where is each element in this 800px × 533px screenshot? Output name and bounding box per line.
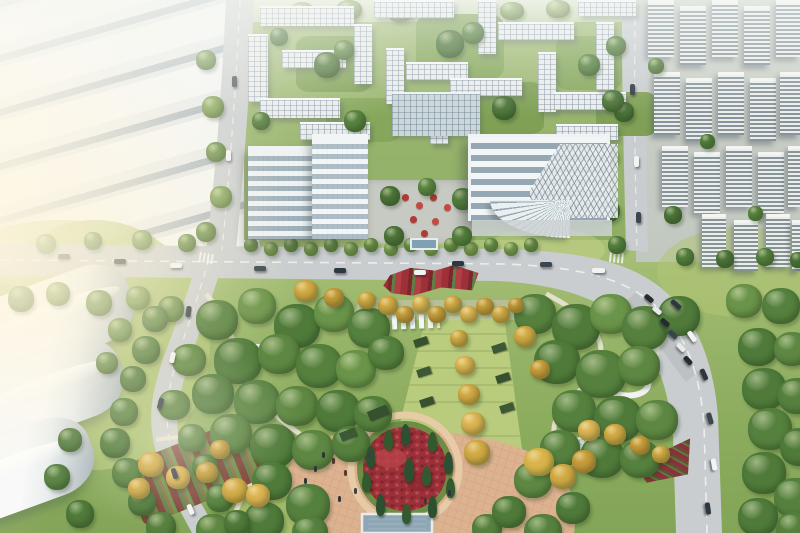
tree — [158, 296, 184, 322]
tree — [314, 294, 354, 332]
park-canopy — [226, 342, 265, 354]
tree — [550, 464, 576, 489]
conifer — [404, 458, 414, 482]
tree — [444, 296, 462, 313]
tree — [142, 306, 168, 332]
car — [670, 299, 682, 311]
hq-tower-left — [248, 134, 368, 238]
tree — [492, 306, 510, 323]
car — [644, 293, 655, 303]
tree — [774, 332, 800, 366]
tree — [192, 374, 234, 414]
person — [344, 470, 347, 476]
tree — [524, 238, 538, 252]
flower-patch — [632, 438, 699, 487]
tree — [464, 440, 490, 465]
conifer — [362, 472, 371, 492]
person — [368, 452, 371, 458]
car — [705, 502, 712, 515]
tree — [244, 502, 284, 533]
tree — [492, 496, 526, 528]
person — [332, 458, 335, 464]
tree — [622, 306, 668, 350]
tree — [368, 336, 404, 370]
person — [304, 478, 307, 484]
car — [683, 355, 693, 366]
tree — [742, 452, 786, 494]
car — [687, 330, 698, 343]
tree — [530, 360, 550, 379]
tree — [738, 328, 778, 366]
tree — [514, 462, 552, 498]
tree — [358, 292, 376, 309]
tree — [296, 344, 342, 388]
greenhouse — [557, 435, 611, 467]
tree — [450, 330, 468, 347]
person — [354, 488, 357, 494]
conifer — [402, 504, 411, 524]
tower-left-wing-b — [312, 134, 368, 239]
factory-halls — [0, 0, 266, 252]
car — [334, 268, 346, 273]
conifer — [384, 430, 393, 450]
red-ribbon-pavilion — [382, 262, 480, 298]
white-pergola-row — [374, 314, 440, 330]
car — [58, 254, 70, 259]
tree — [100, 428, 130, 458]
campus-courtyard-plaza — [366, 180, 472, 244]
tree — [378, 296, 398, 315]
tree — [276, 386, 318, 426]
bed — [495, 372, 511, 384]
tree — [344, 242, 358, 256]
conifer — [444, 452, 453, 474]
tree — [264, 242, 278, 256]
tree — [590, 294, 632, 334]
tree — [324, 238, 338, 252]
tree — [514, 326, 536, 347]
car — [676, 342, 687, 353]
tree — [196, 300, 238, 340]
conifer — [428, 496, 437, 518]
car — [114, 259, 126, 264]
person — [448, 490, 451, 496]
tree — [324, 288, 344, 307]
tree — [618, 346, 660, 386]
tree — [316, 390, 360, 432]
tree — [534, 340, 580, 384]
industrial-district — [0, 0, 266, 252]
axis-terraces — [397, 334, 521, 436]
bed — [491, 342, 507, 354]
person — [322, 452, 325, 458]
tree — [576, 350, 626, 398]
conifer — [376, 494, 385, 516]
tree — [762, 288, 800, 324]
tree — [284, 238, 298, 252]
tree — [258, 334, 300, 374]
flower-plaza — [286, 415, 575, 533]
tree — [484, 238, 498, 252]
tree — [158, 390, 190, 420]
tree — [726, 284, 762, 318]
tree — [524, 448, 554, 476]
car — [185, 306, 191, 318]
car — [699, 368, 708, 381]
car — [540, 262, 552, 267]
car — [592, 268, 605, 273]
tree — [460, 306, 478, 323]
tree — [455, 356, 475, 375]
conifer — [446, 478, 455, 498]
tree — [294, 280, 318, 302]
tree — [304, 242, 318, 256]
tree — [196, 514, 230, 533]
tree — [132, 336, 160, 364]
tree — [508, 298, 524, 313]
tree — [658, 296, 700, 336]
tree — [292, 430, 334, 470]
tree — [332, 426, 370, 462]
tree — [246, 484, 270, 507]
aerial-rendering — [0, 0, 800, 533]
bed — [499, 402, 515, 414]
residential-district-ground — [636, 0, 800, 262]
car — [660, 317, 671, 327]
person — [338, 496, 341, 502]
tree — [636, 400, 678, 440]
tower-right-apron — [472, 220, 612, 236]
tree — [778, 378, 800, 414]
car — [169, 352, 176, 364]
conifer — [401, 424, 410, 446]
tree — [336, 350, 376, 388]
tree — [464, 242, 478, 256]
tree — [776, 512, 800, 533]
car — [170, 263, 182, 268]
bed — [416, 366, 432, 378]
crosswalks — [198, 252, 624, 264]
conifer — [366, 446, 375, 468]
conifer — [428, 432, 437, 452]
tree — [384, 242, 398, 256]
conifer — [422, 466, 431, 486]
car — [706, 412, 714, 425]
tree — [748, 408, 792, 450]
tree — [514, 294, 556, 334]
tree — [476, 298, 494, 315]
tree — [630, 436, 650, 455]
tree — [780, 428, 800, 466]
bed — [339, 427, 357, 441]
tree — [556, 492, 590, 524]
car — [710, 458, 717, 471]
tree — [66, 500, 94, 528]
tree — [524, 514, 562, 533]
person — [424, 498, 427, 504]
tree — [552, 304, 600, 350]
s-curve-canopy — [604, 370, 649, 396]
tree — [424, 242, 438, 256]
car — [652, 305, 663, 315]
tree — [274, 304, 320, 348]
tree — [774, 478, 800, 518]
tree — [286, 484, 330, 526]
tree — [234, 380, 280, 424]
tree — [354, 396, 392, 432]
tree — [172, 344, 206, 376]
reflecting-pool — [362, 514, 432, 533]
tree — [742, 368, 786, 410]
bed — [413, 336, 429, 348]
hq-tower-right — [468, 124, 620, 240]
bed — [367, 405, 389, 422]
tree — [412, 296, 430, 313]
tree — [504, 242, 518, 256]
tree — [472, 514, 502, 533]
person — [314, 466, 317, 472]
car — [668, 329, 679, 340]
tree — [552, 390, 596, 432]
bed — [419, 396, 435, 408]
background-tree-band — [250, 0, 645, 22]
tree — [224, 510, 250, 533]
tree — [292, 516, 328, 533]
tree — [461, 412, 485, 435]
tree — [458, 384, 480, 405]
tree — [238, 288, 276, 324]
community-garden-plots — [121, 418, 266, 526]
tree — [738, 498, 778, 533]
park-paths — [156, 294, 688, 533]
car — [157, 398, 165, 410]
car — [254, 266, 266, 271]
tower-left-wing-a — [248, 146, 320, 239]
